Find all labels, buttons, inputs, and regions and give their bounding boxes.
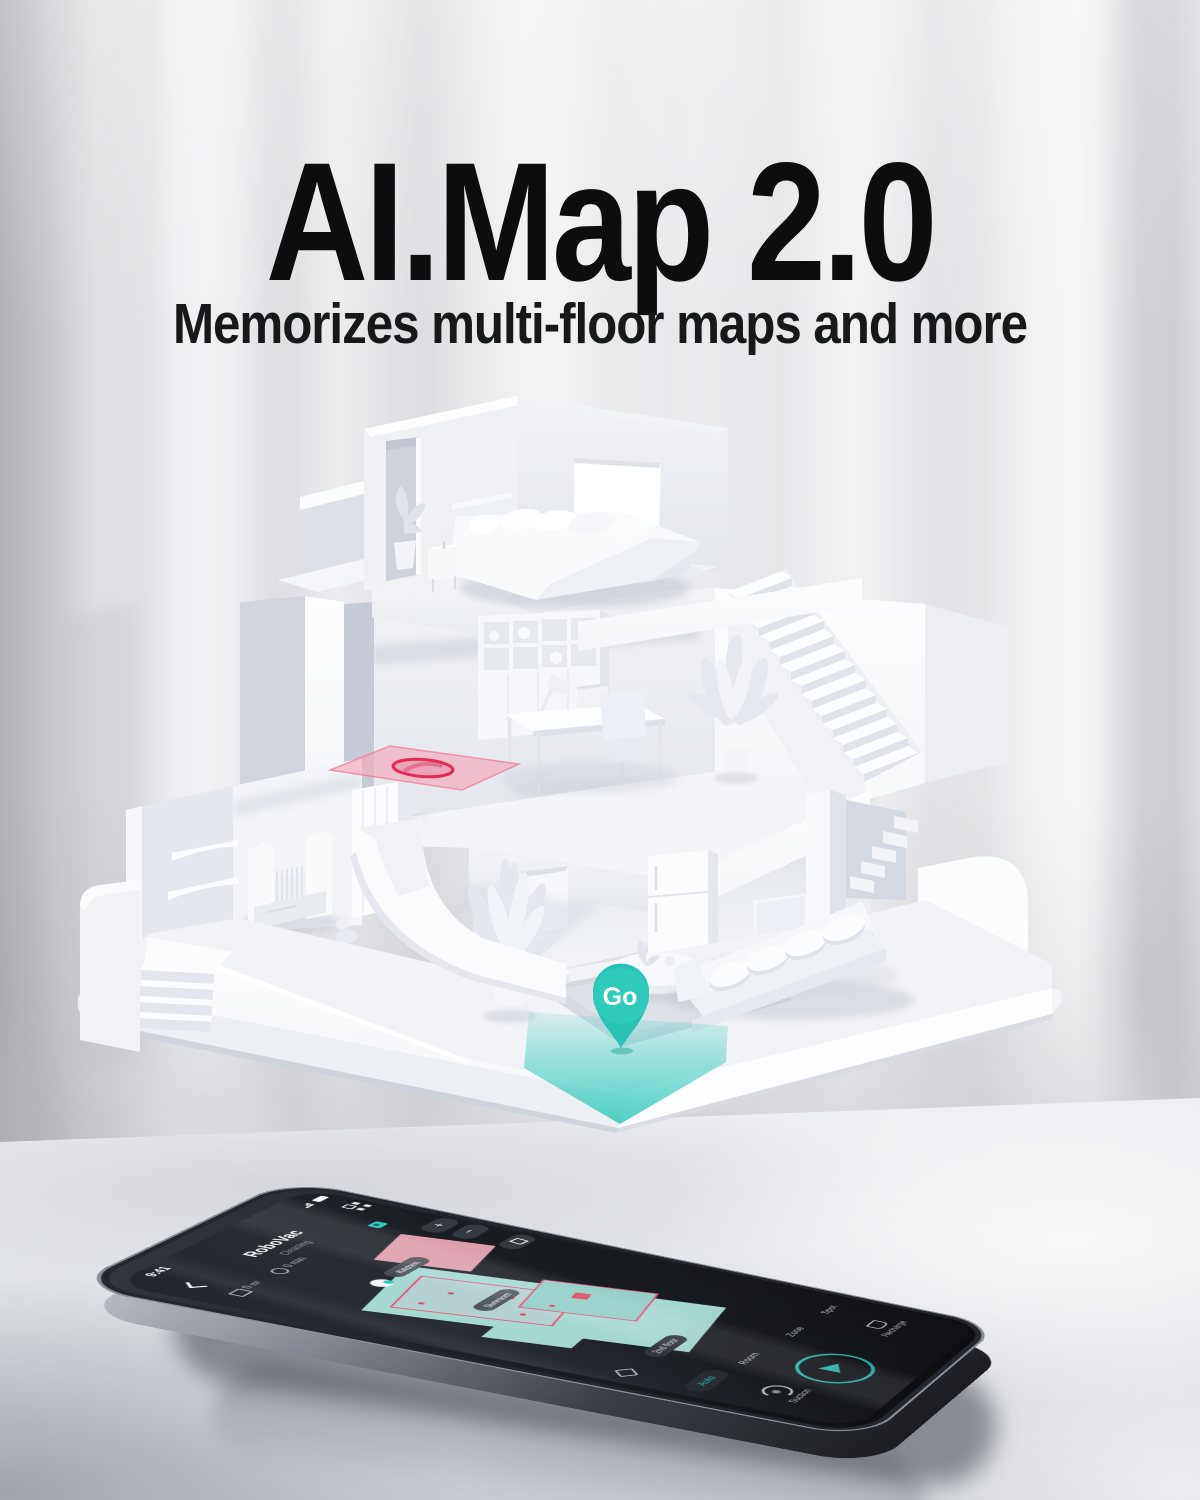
svg-text:Go: Go (603, 983, 638, 1011)
